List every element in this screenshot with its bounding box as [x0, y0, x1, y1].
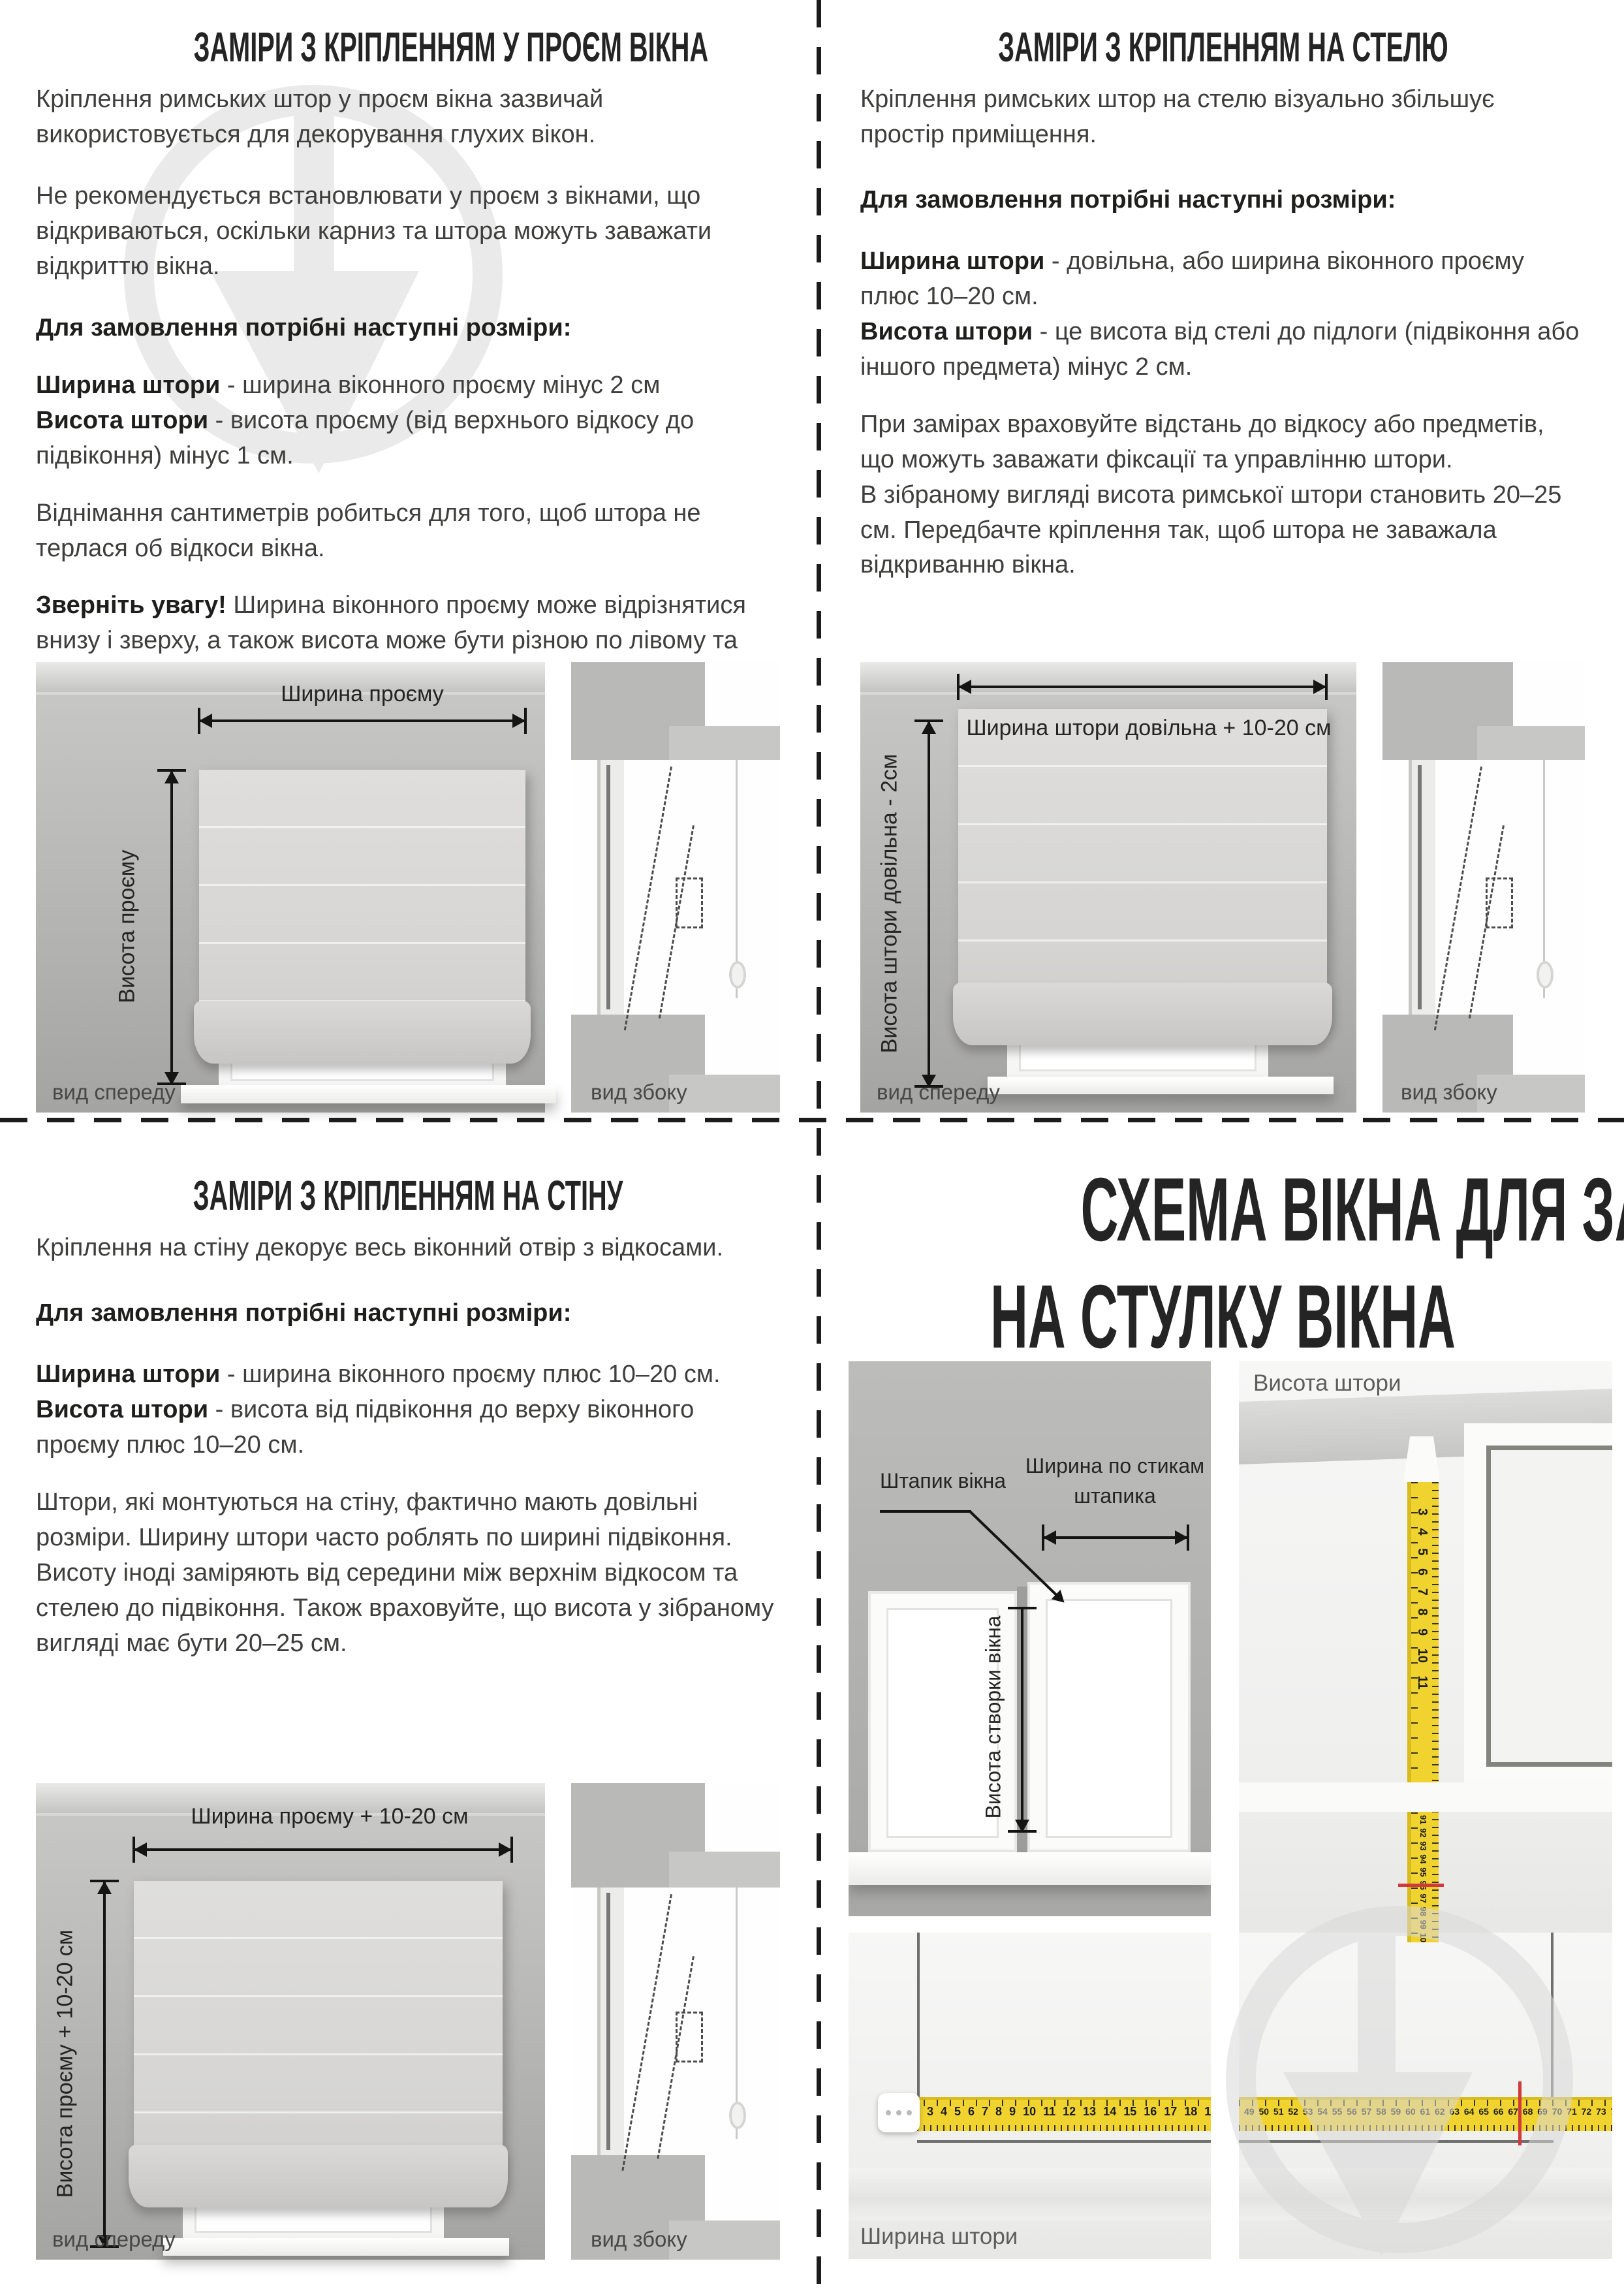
dimension-tick: [1042, 1525, 1044, 1551]
front-view-diagram: Ширина штори довільна + 10-20 см Висота …: [860, 662, 1356, 1113]
bead-leader-line: [880, 1510, 971, 1513]
window-frame: [1464, 1423, 1612, 1789]
term: Висота штори: [36, 1396, 208, 1423]
sill-shadow: [1239, 2168, 1612, 2220]
wall-block: [669, 1852, 780, 1888]
definition: - ширина віконного проєму мінус 2 см: [220, 371, 660, 399]
big-title-line1: СХЕМА ВІКНА ДЛЯ ЗАМІРІВ: [1081, 1168, 1624, 1252]
big-title-line2: НА СТУЛКУ ВІКНА: [990, 1275, 1456, 1359]
width-definition: Ширина штори - ширина віконного проєму м…: [36, 368, 781, 403]
frame-edge-vertical: [917, 1933, 920, 2097]
paragraph: Віднімання сантиметрів робиться для того…: [36, 496, 781, 567]
side-view-diagram: вид збоку: [571, 662, 780, 1113]
curtain-height-label: Висота штори: [1253, 1370, 1401, 1397]
dimension-tick: [133, 1837, 135, 1863]
dimension-tick: [1325, 674, 1328, 700]
tape-numbers: 3 4 5 6 7 8 9 10 11 12 13 14 15 16 17 18…: [927, 2105, 1211, 2119]
section-title: ЗАМІРИ З КРІПЛЕННЯМ НА СТІНУ: [36, 1175, 781, 1216]
tape-numbers-top: 3 4 5 6 7 8 9 10 11: [1414, 1508, 1429, 1690]
sill-shadow: [849, 2168, 1211, 2220]
section-opening-mount: ЗАМІРИ З КРІПЛЕННЯМ У ПРОЄМ ВІКНА Кріпле…: [0, 0, 817, 1118]
joints-width-arrow: [1044, 1536, 1187, 1539]
section-title: ЗАМІРИ З КРІПЛЕННЯМ НА СТЕЛЮ: [860, 26, 1585, 68]
window-sill: [988, 1077, 1334, 1094]
dimension-tick: [1008, 1830, 1037, 1833]
term: Висота штори: [860, 318, 1033, 345]
joints-width-label-line2: штапика: [1023, 1484, 1206, 1508]
definition: - ширина віконного проєму плюс 10–20 см.: [220, 1361, 720, 1388]
roman-shade: [958, 709, 1327, 1026]
height-dimension-label: Висота проєму + 10-20 см: [53, 1930, 78, 2198]
cord-pull: [1537, 961, 1554, 988]
dimension-tick: [914, 719, 943, 722]
cord-pull: [729, 2102, 746, 2129]
dimension-tick: [1008, 1607, 1037, 1609]
sash-height-label: Висота створки вікна: [982, 1616, 1006, 1819]
paragraph: Кріплення на стіну декорує весь віконний…: [36, 1231, 781, 1266]
paragraph: В зібраному вигляді висота римської штор…: [860, 478, 1585, 584]
height-dimension-arrow: [170, 772, 173, 1084]
curtain-height-photo-panel: Висота штори 3 4 5 6 7 8 9 10 11 91 92 9…: [1239, 1361, 1612, 1942]
height-dimension-arrow: [928, 722, 930, 1086]
window-side-slot: [606, 1893, 610, 2150]
paragraph: Не рекомендується встановлювати у проєм …: [36, 179, 781, 285]
side-view-caption: вид збоку: [591, 2227, 687, 2252]
shade-bottom-fold: [129, 2145, 508, 2207]
height-dimension-arrow: [103, 1882, 106, 2247]
front-view-caption: вид спереду: [877, 1080, 1000, 1105]
paragraph: Кріплення римських штор на стелю візуаль…: [860, 82, 1585, 153]
dimension-tick: [157, 769, 186, 772]
frame-edge-horizontal: [917, 2140, 1211, 2143]
bead-label: Штапик вікна: [880, 1469, 1006, 1493]
tape-metal-tip: [878, 2093, 920, 2132]
section-title: ЗАМІРИ З КРІПЛЕННЯМ У ПРОЄМ ВІКНА: [36, 26, 781, 68]
window-glass: [1486, 1446, 1612, 1767]
term: Ширина штори: [860, 247, 1044, 275]
dimension-tick: [524, 708, 527, 734]
order-intro: Для замовлення потрібні наступні розміри…: [36, 1296, 781, 1331]
red-measure-mark: [1398, 1884, 1444, 1887]
dimension-tick: [957, 674, 960, 700]
order-intro: Для замовлення потрібні наступні розміри…: [860, 183, 1585, 218]
term: Висота штори: [36, 407, 208, 434]
sash-handle-dashed: [1486, 877, 1513, 928]
width-dimension-label: Ширина проєму: [281, 682, 444, 707]
sash-height-arrow: [1021, 1609, 1023, 1831]
ceiling-strip: [860, 662, 1356, 695]
wall-block: [1477, 726, 1585, 760]
paragraph: При замірах враховуйте відстань до відко…: [860, 407, 1585, 478]
window-side-frame: [597, 1888, 624, 2155]
section-title-text: ЗАМІРИ З КРІПЛЕННЯМ У ПРОЄМ ВІКНА: [194, 26, 708, 68]
width-dimension-label: Ширина проєму + 10-20 см: [191, 1804, 468, 1829]
side-view-caption: вид збоку: [591, 1080, 687, 1105]
window-side-frame: [597, 760, 624, 1015]
frame-edge-horizontal: [1239, 2140, 1554, 2143]
roman-shade: [134, 1881, 503, 2188]
height-definition: Висота штори - це висота від стелі до пі…: [860, 315, 1585, 385]
vertical-fold-dashed-line: [817, 0, 821, 2291]
width-dimension-arrow: [200, 719, 524, 722]
width-definition: Ширина штори - довільна, або ширина віко…: [860, 244, 1585, 315]
window-sill: [163, 2238, 509, 2256]
bead-leader-arrow: [969, 1511, 1058, 1596]
section-wall-mount: ЗАМІРИ З КРІПЛЕННЯМ НА СТІНУ Кріплення н…: [0, 1122, 817, 2291]
dimension-tick: [90, 1880, 119, 1882]
window-side-slot: [1418, 765, 1422, 1009]
sash-glass: [1046, 1599, 1172, 1838]
joints-width-label-line1: Ширина по стикам: [1023, 1454, 1206, 1478]
width-definition: Ширина штори - ширина віконного проєму п…: [36, 1357, 731, 1393]
front-view-diagram: Ширина проєму Висота проєму вид спереду: [36, 662, 545, 1113]
section-title-text: ЗАМІРИ З КРІПЛЕННЯМ НА СТІНУ: [193, 1175, 623, 1216]
curtain-width-photo-right: 49 50 51 52 53 54 55 56 57 58 59 60 61 6…: [1239, 1933, 1612, 2259]
window-ledge-band: [1239, 1782, 1612, 1812]
sash-handle-dashed: [676, 2012, 703, 2062]
shade-bottom-fold: [953, 983, 1332, 1045]
big-title: СХЕМА ВІКНА ДЛЯ ЗАМІРІВ НА СТУЛКУ ВІКНА: [821, 1168, 1624, 1382]
dimension-tick: [510, 1837, 513, 1863]
section-ceiling-mount: ЗАМІРИ З КРІПЛЕННЯМ НА СТЕЛЮ Кріплення р…: [821, 0, 1624, 1118]
curtain-width-label: Ширина штори: [860, 2224, 1018, 2250]
dimension-tick: [198, 708, 200, 734]
section-title-text: ЗАМІРИ З КРІПЛЕННЯМ НА СТЕЛЮ: [998, 26, 1448, 68]
height-definition: Висота штори - висота від підвіконня до …: [36, 1393, 731, 1463]
height-definition: Висота штори - висота проєму (від верхнь…: [36, 403, 781, 474]
width-dimension-arrow: [135, 1848, 510, 1851]
front-view-caption: вид спереду: [52, 1080, 176, 1105]
front-view-diagram: Ширина проєму + 10-20 см Висота проєму +…: [36, 1783, 545, 2260]
tape-numbers: 49 50 51 52 53 54 55 56 57 58 59 60 61 6…: [1244, 2106, 1612, 2117]
right-sash: [1027, 1582, 1191, 1852]
sash-diagram-panel: Штапик вікна Ширина по стикам штапика Ви…: [849, 1361, 1211, 1916]
dimension-tick: [1187, 1525, 1189, 1551]
height-dimension-label: Висота штори довільна - 2см: [877, 754, 903, 1054]
width-dimension-label: Ширина штори довільна + 10-20 см: [966, 716, 1331, 741]
wall-block: [669, 726, 780, 760]
term: Ширина штори: [36, 1361, 220, 1388]
width-dimension-arrow: [960, 686, 1325, 688]
window-side-slot: [606, 765, 610, 1009]
window-sill: [181, 1085, 556, 1103]
height-dimension-label: Висота проєму: [115, 849, 140, 1003]
sash-handle-dashed: [676, 877, 703, 928]
tape-numbers-bottom: 91 92 93 94 95 96 97 98 99 100 101 102 1…: [1418, 1815, 1428, 1942]
measurement-guide-page: ЗАМІРИ З КРІПЛЕННЯМ У ПРОЄМ ВІКНА Кріпле…: [0, 0, 1624, 2291]
note-term: Зверніть увагу!: [36, 592, 226, 619]
paragraph: Штори, які монтуються на стіну, фактично…: [36, 1485, 781, 1662]
window-side-frame: [1409, 760, 1435, 1015]
horizontal-fold-dashed-line: [0, 1118, 1624, 1122]
side-view-diagram: вид збоку: [571, 1783, 780, 2260]
red-measure-mark: [1518, 2081, 1522, 2145]
side-view-caption: вид збоку: [1401, 1080, 1497, 1105]
side-view-diagram: вид збоку: [1382, 662, 1585, 1113]
order-intro: Для замовлення потрібні наступні розміри…: [36, 311, 781, 346]
frame-edge-vertical: [1551, 1933, 1554, 2097]
section-sash-scheme: СХЕМА ВІКНА ДЛЯ ЗАМІРІВ НА СТУЛКУ ВІКНА …: [821, 1122, 1624, 2291]
shade-bottom-fold: [194, 1001, 531, 1064]
cord-pull: [729, 961, 746, 988]
paragraph: Кріплення римських штор у проєм вікна за…: [36, 82, 781, 153]
front-view-caption: вид спереду: [52, 2227, 176, 2252]
roman-shade: [199, 770, 525, 1044]
open-sash-dashed-line: [621, 1894, 672, 2171]
window-sill: [849, 1852, 1211, 1885]
curtain-width-photo-left: 3 4 5 6 7 8 9 10 11 12 13 14 15 16 17 18…: [849, 1933, 1211, 2259]
term: Ширина штори: [36, 371, 220, 399]
